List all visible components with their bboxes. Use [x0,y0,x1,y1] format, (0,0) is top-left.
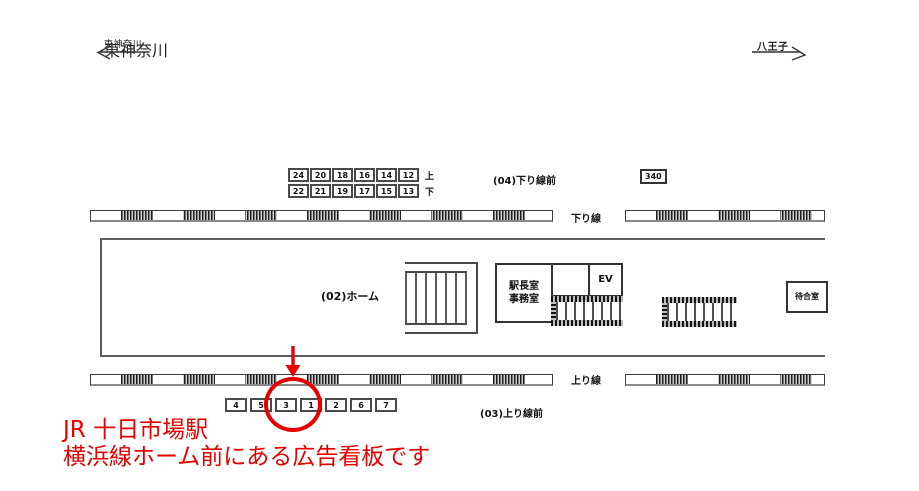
area-label-04-down-line-front: (04)下り線前 [493,172,556,187]
billboard-box-22: 22 [288,184,309,198]
up-line-label: 上り線 [571,372,601,387]
highlight-circle [264,377,322,432]
down-line-label: 下り線 [571,210,601,225]
row-down-suffix: 下 [425,185,434,198]
office-label-line2: 事務室 [509,293,539,307]
direction-left-label-text: 東神奈川 [104,37,142,50]
billboard-box-15: 15 [376,184,397,198]
arrow-right-icon [750,46,810,62]
billboard-box-21: 21 [310,184,331,198]
billboard-box-20: 20 [310,168,331,182]
row-up-suffix: 上 [425,169,434,182]
billboard-box-16: 16 [354,168,375,182]
billboard-box-2: 2 [325,398,347,412]
down-line-track-left-segment [90,210,553,222]
highlight-arrow-down-icon [284,346,302,378]
elevator-label: EV [598,273,613,287]
billboard-box-14: 14 [376,168,397,182]
billboard-box-12: 12 [398,168,419,182]
waiting-room-box: 待合室 [786,281,828,313]
billboard-box-6: 6 [350,398,372,412]
billboard-box-340: 340 [640,169,667,184]
escalator-icon-2 [662,297,737,327]
unlabeled-room [551,263,590,297]
escalator-2-bottom-rail [662,321,737,327]
stairs-icon [405,262,478,334]
escalator-icon-1 [551,296,623,326]
station-office-label: 駅長室 事務室 [509,280,539,307]
upper-billboard-row-down: 22 21 19 17 15 13 下 [288,184,434,198]
escalator-1-steps [556,302,623,320]
billboard-box-24: 24 [288,168,309,182]
down-line-track-right-segment [625,210,825,222]
platform-label: (02)ホーム [321,288,379,304]
upper-billboard-row-up: 24 20 18 16 14 12 上 [288,168,434,182]
escalator-2-steps [667,303,737,321]
billboard-box-17: 17 [354,184,375,198]
station-office-room: 駅長室 事務室 [495,263,553,323]
station-layout-diagram: 東神奈川 東神奈川 八王子 24 20 18 16 14 12 上 22 21 … [0,0,919,491]
billboard-box-18: 18 [332,168,353,182]
billboard-box-7: 7 [375,398,397,412]
billboard-box-19: 19 [332,184,353,198]
caption: JR 十日市場駅 横浜線ホーム前にある広告看板です [63,417,430,470]
office-label-line1: 駅長室 [509,280,539,294]
billboard-box-4: 4 [225,398,247,412]
area-label-03-up-line-front: (03)上り線前 [480,405,543,420]
up-line-track-right-segment [625,374,825,386]
caption-line2: 横浜線ホーム前にある広告看板です [63,444,430,471]
billboard-box-13: 13 [398,184,419,198]
elevator-box: EV [588,263,623,297]
escalator-1-bottom-rail [551,320,623,326]
waiting-room-label: 待合室 [795,292,819,303]
caption-line1: JR 十日市場駅 [63,417,430,444]
up-line-track-left-segment [90,374,553,386]
stairs-steps [405,271,467,325]
